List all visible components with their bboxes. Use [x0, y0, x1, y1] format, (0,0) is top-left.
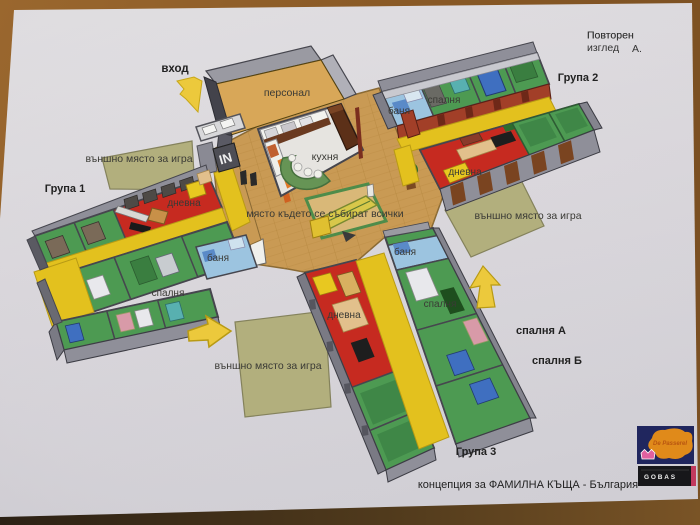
- svg-text:баня: баня: [207, 252, 229, 264]
- svg-text:баня: баня: [394, 246, 416, 258]
- svg-text:външно място за игра: външно място за игра: [85, 153, 192, 165]
- svg-text:външно място за игра: външно място за игра: [474, 210, 581, 222]
- svg-text:дневна: дневна: [327, 310, 361, 321]
- svg-text:Повторен: Повторен: [587, 30, 634, 42]
- svg-text:вход: вход: [161, 63, 189, 75]
- svg-text:GOBAS: GOBAS: [644, 474, 677, 481]
- svg-text:Група 3: Група 3: [456, 446, 496, 458]
- svg-text:спалня Б: спалня Б: [532, 355, 582, 367]
- svg-text:Група 1: Група 1: [45, 183, 85, 195]
- svg-text:дневна: дневна: [448, 167, 482, 178]
- svg-text:персонал: персонал: [264, 87, 310, 99]
- svg-text:баня: баня: [388, 105, 410, 117]
- svg-text:кухня: кухня: [312, 151, 339, 163]
- svg-text:спалня: спалня: [424, 299, 457, 310]
- svg-text:спалня: спалня: [152, 288, 185, 299]
- svg-text:Група 2: Група 2: [558, 72, 598, 84]
- svg-text:А.: А.: [632, 43, 642, 55]
- svg-text:изглед: изглед: [587, 42, 619, 54]
- svg-text:концепция за ФАМИЛНА КЪЩА - Бъ: концепция за ФАМИЛНА КЪЩА - България: [418, 479, 638, 491]
- svg-text:спалня А: спалня А: [516, 325, 566, 337]
- svg-text:външно място за игра: външно място за игра: [214, 360, 321, 372]
- svg-text:спалня: спалня: [428, 95, 461, 106]
- svg-text:място където се събират всички: място където се събират всички: [246, 208, 403, 220]
- svg-text:дневна: дневна: [167, 198, 201, 209]
- svg-text:De Passerel: De Passerel: [653, 441, 687, 447]
